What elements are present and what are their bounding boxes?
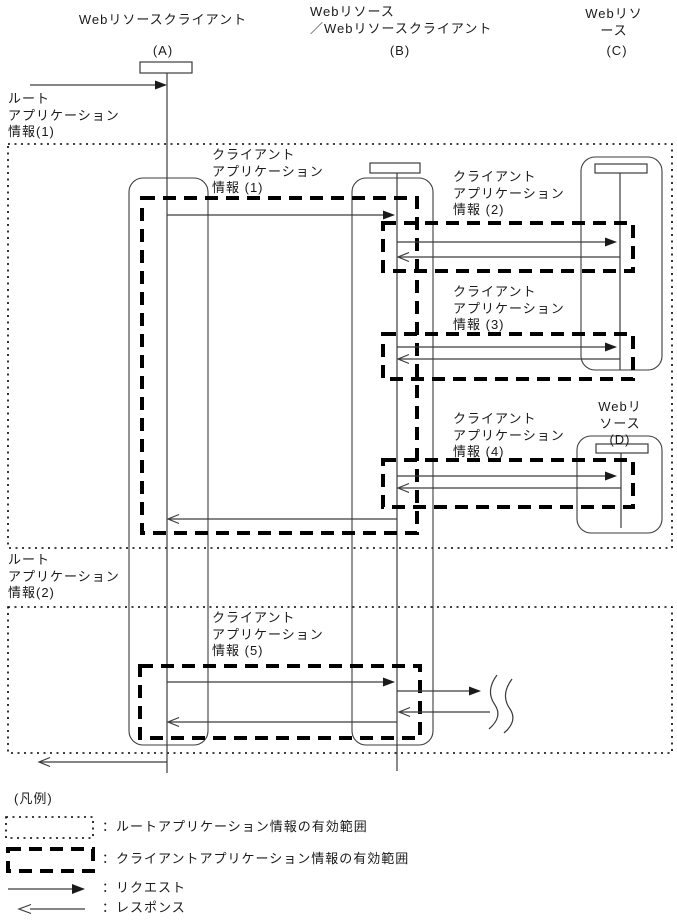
- request-3-arrow: [397, 343, 617, 352]
- response-1-arrow: [168, 515, 397, 524]
- column-c-title: Webリソース: [583, 6, 646, 39]
- column-b-id: (B): [390, 43, 410, 60]
- client-scope-4-label: クライアント アプリケーション 情報 (4): [453, 411, 565, 461]
- request-initial-arrow: [30, 81, 167, 90]
- client-scope-2-label: クライアント アプリケーション 情報 (2): [453, 169, 565, 219]
- legend-dashed-box-sample: [8, 849, 93, 871]
- legend-item-request: ：リクエスト: [102, 880, 186, 897]
- response-5-arrow: [168, 718, 397, 727]
- root-scope-2-box: [8, 607, 672, 753]
- activation-c: [595, 164, 647, 173]
- column-a-id: (A): [153, 43, 173, 60]
- column-d-title: Webリソース (D): [592, 399, 649, 449]
- request-continue-arrow: [397, 687, 481, 696]
- column-b-title: Webリソース ／Webリソースクライアント: [310, 4, 492, 37]
- legend-item-root-scope: ：ルートアプリケーション情報の有効範囲: [102, 819, 368, 836]
- activation-b: [370, 163, 420, 173]
- column-c-id: (C): [606, 43, 627, 60]
- resource-c-container: [581, 157, 662, 370]
- response-continue-arrow: [399, 708, 490, 717]
- response-3-arrow: [398, 355, 620, 364]
- request-4-arrow: [397, 472, 617, 481]
- root-scope-2-label: ルート アプリケーション 情報(2): [8, 552, 120, 602]
- legend-title: (凡例): [14, 791, 53, 808]
- legend-request-arrow-sample: [8, 884, 85, 894]
- response-4-arrow: [398, 484, 621, 493]
- client-scope-3-label: クライアント アプリケーション 情報 (3): [453, 284, 565, 334]
- legend-response-arrow-sample: [19, 905, 85, 914]
- client-scope-1-box: [142, 198, 417, 533]
- request-5-arrow: [167, 678, 395, 687]
- client-scope-5-label: クライアント アプリケーション 情報 (5): [212, 610, 324, 660]
- client-scope-3-box: [383, 334, 633, 379]
- client-scope-4-box: [383, 460, 633, 507]
- response-2-arrow: [398, 253, 620, 262]
- request-1-arrow: [167, 211, 395, 220]
- activation-a: [140, 62, 192, 73]
- legend-item-client-scope: ：クライアントアプリケーション情報の有効範囲: [102, 851, 409, 868]
- root-scope-1-label: ルート アプリケーション 情報(1): [8, 91, 120, 141]
- break-symbol: [489, 675, 513, 733]
- legend-dotted-box-sample: [6, 817, 93, 838]
- request-2-arrow: [397, 238, 617, 247]
- column-a-title: Webリソースクライアント: [79, 12, 247, 29]
- client-scope-2-box: [383, 223, 633, 271]
- client-scope-5-box: [140, 666, 420, 738]
- response-final-arrow: [39, 758, 167, 767]
- client-scope-1-label: クライアント アプリケーション 情報 (1): [212, 147, 324, 197]
- sequence-diagram: Webリソースクライアント (A) Webリソース ／Webリソースクライアント…: [0, 0, 677, 921]
- legend-item-response: ：レスポンス: [102, 900, 186, 917]
